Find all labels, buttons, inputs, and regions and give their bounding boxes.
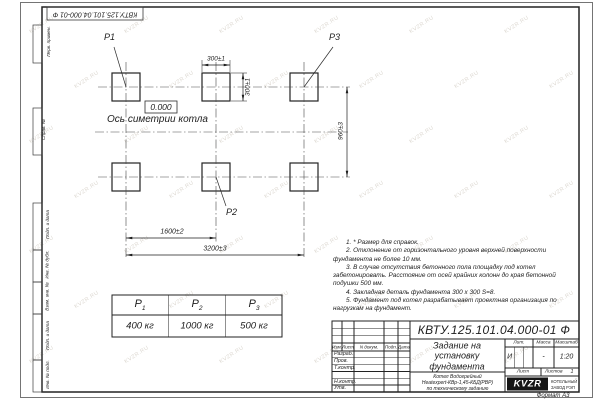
dim-pad-width: 300±1	[207, 56, 225, 63]
margin-label-podp-data-1: Подп. и дата	[33, 222, 42, 227]
margin-label-text: Справ. №	[41, 119, 46, 140]
load-table-header-p3: P3	[248, 298, 259, 312]
note-line-1: 1. * Размер для справок.	[333, 239, 576, 247]
centerlines	[95, 62, 350, 259]
margin-label-text: Подп. и дата	[45, 321, 50, 350]
load-value-p3: 500 кг	[240, 321, 268, 332]
dim-pad-height: 300±1	[245, 78, 252, 96]
margin-label-text: Взам. инв. №	[45, 282, 50, 310]
row-label-prov: Пров.	[334, 358, 348, 364]
company-line-2: ЗАВОД РЭП	[551, 385, 575, 390]
margin-label-podp-data-2: Подп. и дата	[33, 333, 42, 338]
mass-label: Масса	[536, 341, 550, 346]
col-header-list: Лист	[342, 345, 354, 350]
margin-label-vzam-inv: Взам. инв. №	[33, 294, 42, 299]
note-line-2: 2. Отклонение от горизонтального уровня …	[333, 247, 576, 264]
load-table-header-p2: P2	[191, 298, 202, 312]
load-table-header-p1: P1	[134, 298, 145, 312]
load-point-label-p3: P3	[329, 32, 340, 42]
margin-label-text: Инв. № подл.	[45, 360, 50, 389]
col-header-sign: Подп.	[385, 345, 397, 350]
margin-label-sprav-no: Справ. №	[33, 127, 42, 132]
load-point-label-p1: P1	[104, 32, 115, 42]
sheets-value: 1	[571, 369, 574, 375]
dimension-lines	[126, 65, 347, 255]
dim-col-spacing: 1600±2	[160, 229, 183, 236]
drawing-title: Задание на установку фундамента	[426, 340, 488, 372]
format-label: Формат А3	[537, 393, 570, 399]
sheet-frame	[21, 3, 593, 398]
boiler-symmetry-axis-label: Ось симетрии котла	[107, 114, 208, 125]
load-point-label-p2: P2	[226, 207, 237, 217]
corner-stamp: КВТУ.125.101.04.000-01 Ф	[53, 10, 138, 17]
sheets-label: Листов	[545, 370, 562, 375]
col-header-izm: Изм.	[332, 345, 342, 350]
lit-label: Лит.	[513, 341, 524, 346]
load-value-p1: 400 кг	[126, 321, 154, 332]
p-sub: 2	[199, 305, 203, 312]
p-sub: 1	[142, 305, 146, 312]
note-line-4: 4. Закладная деталь фундамента 300 x 300…	[333, 289, 576, 297]
row-label-nkontr: Н.контр.	[334, 379, 356, 385]
col-header-date: Дата	[398, 345, 410, 350]
p-sub: 3	[256, 305, 260, 312]
col-header-doc: N докум.	[360, 345, 379, 350]
doc-number: КВТУ.125.101.04.000-01 Ф	[418, 323, 571, 337]
mass-value: -	[542, 354, 544, 361]
scale-value: 1:20	[560, 354, 574, 361]
margin-label-inv-podl: Инв. № подл.	[33, 372, 42, 377]
row-label-tkontr: Т.контр.	[334, 365, 355, 371]
margin-label-text: Перв. примен.	[46, 26, 51, 57]
note-line-3: 3. В случае отсутствия бетонного пола пл…	[333, 264, 576, 289]
extension-lines	[202, 60, 247, 101]
product-line-3: по техническому заданию	[427, 386, 489, 392]
notes-block: 1. * Размер для справок. 2. Отклонение о…	[333, 239, 576, 313]
margin-label-text: Подп. и дата	[45, 210, 50, 239]
drawing-linework	[0, 0, 600, 400]
row-label-utv: Утв.	[334, 385, 346, 391]
row-label-razrab: Разраб.	[334, 351, 353, 357]
lit-value: И	[507, 354, 512, 361]
margin-label-perv-primen: Перв. примен.	[33, 39, 42, 44]
kvzr-logo: KVZR	[514, 379, 542, 390]
dim-total-span: 3200±3	[203, 246, 226, 253]
note-line-5: 5. Фундамент под котел разрабатывает про…	[333, 297, 576, 314]
leader-lines	[114, 47, 333, 206]
elevation-mark: 0.000	[150, 102, 171, 112]
load-value-p2: 1000 кг	[181, 321, 214, 332]
company-line-1: КОТЕЛЬНЫЙ	[551, 379, 577, 384]
sheet-label: Лист	[517, 370, 529, 375]
dim-row-spacing: 960±3	[338, 122, 345, 140]
scale-label: Масштаб	[555, 341, 577, 346]
margin-label-inv-dubl: Инв. № дубл.	[33, 262, 42, 267]
drawing-sheet: KVZR.RUKVZR.RUKVZR.RUKVZR.RUKVZR.RUKVZR.…	[0, 0, 600, 400]
margin-label-text: Инв. № дубл.	[45, 250, 50, 278]
